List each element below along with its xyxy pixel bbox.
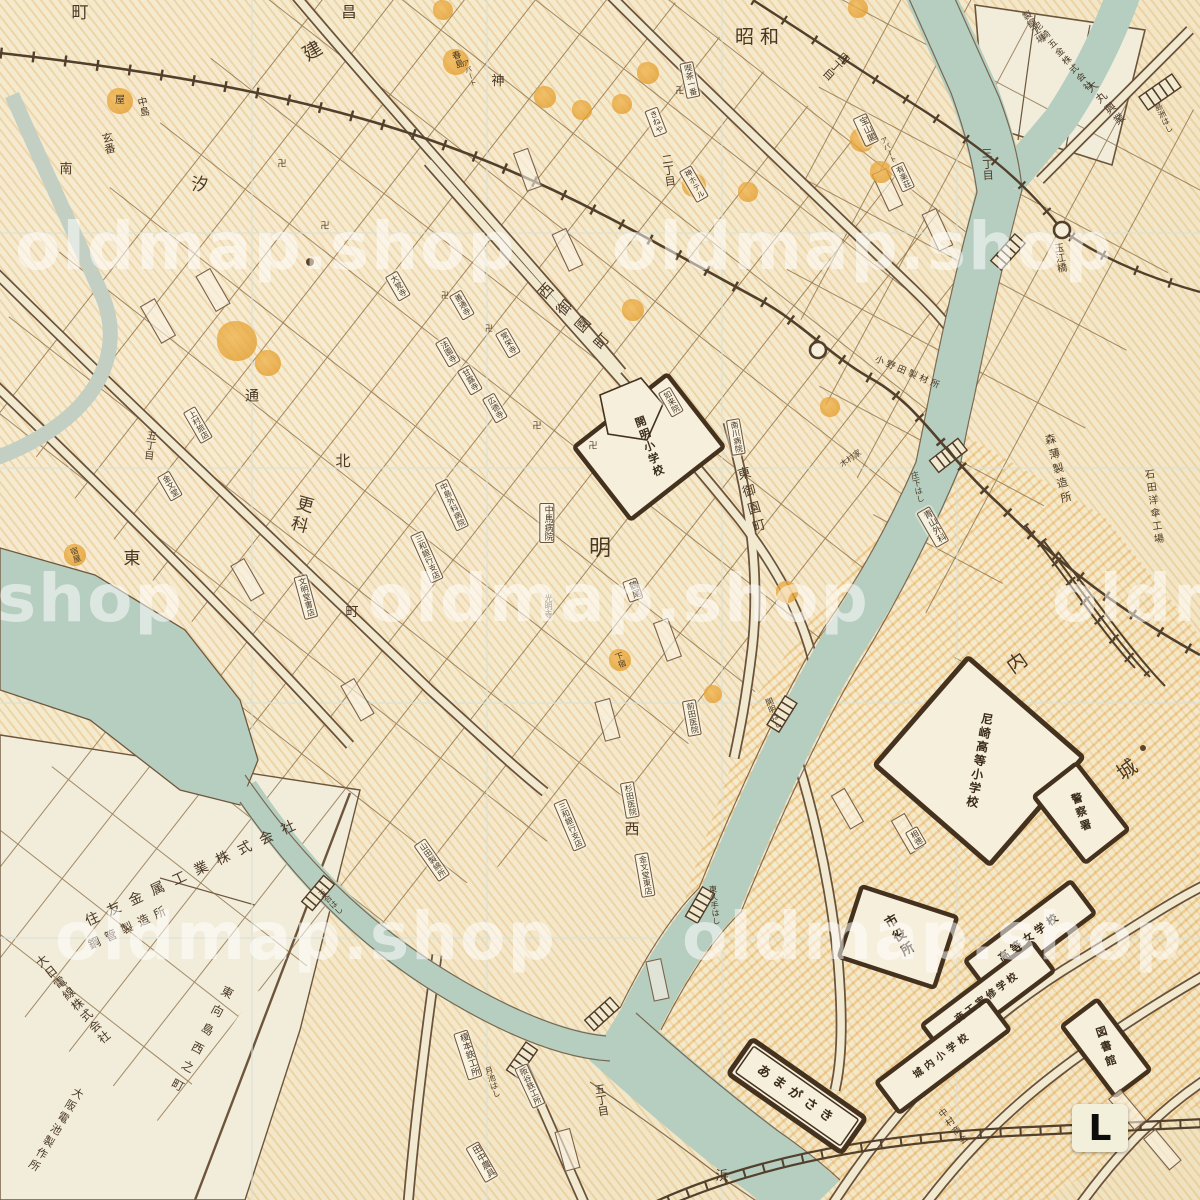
station-circle-east (1054, 222, 1070, 238)
old-map-sheet: 町建昌汐南玄番中島屋昭和四丁目二丁目三丁目五丁目五丁目西御園町東御園町明更科北町… (0, 0, 1200, 1200)
station-circle-west (810, 342, 826, 358)
sheet-index-letter: L (1089, 1108, 1112, 1149)
map-graphics (0, 0, 1200, 1200)
sheet-index-badge: L (1072, 1104, 1128, 1152)
